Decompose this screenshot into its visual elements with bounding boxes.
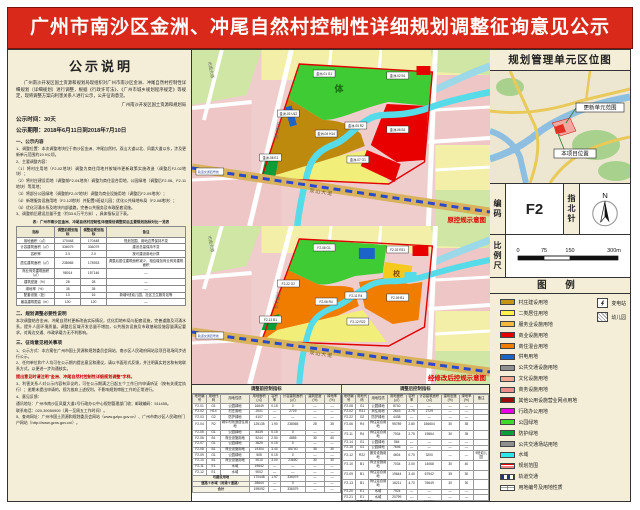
svg-text:150: 150: [565, 248, 574, 254]
parcel-label: 金洲-04 H14: [315, 130, 337, 137]
section4-items: 3、利害关系人对公示内容有异议的，可在公示期满之日起五个工作日内申请听证（按有关…: [16, 381, 186, 413]
legend-label: 防护绿地: [519, 430, 539, 437]
legend-item: 商业设施用地: [500, 330, 628, 341]
table-row: 商业商务建筑面积（㎡）98014157146—: [17, 268, 186, 279]
legend-item-kindergarten: 幼儿园: [597, 312, 626, 322]
before-table-caption: 调整前控制指标: [192, 385, 341, 394]
svg-text:本项目位置: 本项目位置: [561, 150, 589, 158]
svg-text:轨道交通四号线: 轨道交通四号线: [198, 169, 219, 174]
legend-item: 文化设施用地: [500, 373, 628, 384]
table-row: 用地面积（㎡）170448170448规划范围、用地边界保持不变: [17, 237, 186, 244]
table-row: 居住建筑面积（㎡）238065178933调整后居住建筑面积减少，相应增加商业商…: [17, 257, 186, 268]
legend-label: 商住混合用地: [519, 343, 548, 350]
notice-paragraph: 本次调整结合金洲、冲尾自然村更新改造实际情况，优化用地布局与配套设施，完善道路及…: [16, 318, 186, 335]
svg-text:金洲-05 R2: 金洲-05 R2: [348, 123, 364, 128]
svg-text:300m: 300m: [607, 248, 621, 254]
parcel-label: F2-08 G1: [313, 244, 335, 251]
legend-swatch: [500, 485, 515, 491]
svg-text:轨道交通四号线: 轨道交通四号线: [198, 333, 219, 338]
table-header-row: 指标调整前规划指标调整后规划指标备注: [17, 227, 186, 238]
mini-table-caption: 表：广州市南沙区金洲、冲尾自然村控制性详细规划调整前后主要规划指标对比一览表: [16, 220, 186, 225]
location-map-title: 规划管理单元区位图: [490, 50, 630, 71]
planning-notice-poster: 广州市南沙区金洲、冲尾自然村控制性详细规划调整征询意见公示 公示说明 广州南沙开…: [0, 0, 640, 510]
kindergarten-icon: [597, 312, 608, 322]
table-row: 容积率2.02.0按可建设用地计算: [17, 251, 186, 258]
legend-swatch: [500, 299, 515, 305]
legend-swatch: [500, 310, 515, 316]
notice-paragraph: 4、意见反馈：: [16, 394, 186, 400]
legend-item: 商务设施用地: [500, 384, 628, 395]
notice-paragraph: （3）将部分公园绿地（调整前F2-07地块）调整为商业设施用地（调整后F2-09…: [16, 191, 186, 197]
notice-paragraph: （1）将村庄用地（F2-02地块）调整为商住用地并按城市更新政策实施改造（调整后…: [16, 166, 186, 177]
parcel-label: 金洲-01 G1: [313, 70, 335, 77]
map-callout-site: 本项目位置: [554, 149, 596, 158]
legend-icons: 变电站 幼儿园: [597, 298, 626, 322]
notice-panel: 公示说明 广州南沙开发区国土资源和规划局现组织对广州市南沙区金洲、冲尾自然村控制…: [8, 50, 192, 501]
legend-label: 用地编号及用地性质: [519, 484, 563, 491]
table-row: F2-13B1商住混合用地162114.70766493030: [342, 480, 489, 490]
notice-paragraph: （4）新增服务设施用地（F2-12地块）并配置9班幼儿园；优化公共绿地布局（F2…: [16, 198, 186, 204]
table-row: F2-12R22服务设施用地46040.703200——9班幼儿园: [342, 451, 489, 461]
legend-label: 文化设施用地: [519, 375, 548, 382]
legend-swatch: [500, 387, 515, 393]
svg-text:F2-08 G1: F2-08 G1: [317, 246, 331, 250]
legend-swatch: [500, 332, 515, 338]
parcel-label: F2-06 R4: [315, 298, 337, 305]
before-indicator-table: 地块编号用地代码用地性质用地面积(㎡)容积率计容建筑面积(㎡)建筑密度(%)绿地…: [192, 394, 341, 493]
legend-item: 行政办公用地: [500, 406, 628, 417]
svg-text:金洲-06 B1: 金洲-06 B1: [390, 127, 406, 132]
notice-paragraph: 3、调整前后建设总量不变（约33.6万平方米），具体指标见下表。: [16, 211, 186, 217]
notice-paragraph: （2）将村庄建设用地（调整前F2-04地块）调整为商住混合用地、公园绿地（调整后…: [16, 178, 186, 189]
legend-item: 公共交通设施用地: [500, 362, 628, 373]
school-mark: 校: [393, 269, 400, 278]
legend-swatch: [500, 463, 515, 469]
legend-swatch: [500, 365, 515, 371]
north-compass: N: [580, 184, 630, 234]
svg-text:0: 0: [516, 248, 519, 254]
legend-label: 商业设施用地: [519, 332, 548, 339]
legend-item-substation: 变电站: [597, 298, 626, 308]
section2-items: 本次调整结合金洲、冲尾自然村更新改造实际情况，优化用地布局与配套设施，完善道路及…: [16, 318, 186, 335]
scale-bar: 0 75 150 300m: [506, 235, 630, 277]
legend-label: 其他公用设施营业网点用地: [519, 397, 578, 404]
notice-paragraph: （5）优化河涌水系及地块内部道路，完善公共服务及市政配套设施。: [16, 205, 186, 211]
svg-text:F2-11 R4: F2-11 R4: [349, 294, 362, 298]
legend-swatch: [500, 419, 515, 425]
map-corner-label: 原控规示意图: [447, 215, 486, 224]
notice-paragraph: 通讯地址：广州市南沙区凤凰大道1号行政办公中心规划管理部门收；邮政编码：5114…: [16, 401, 186, 407]
notice-time: 公示时间：30天: [16, 115, 186, 123]
parcel-label: 金洲-05 R2: [345, 122, 367, 129]
svg-text:更新单元范围: 更新单元范围: [583, 104, 617, 112]
table-row: F2-09B1商住混合用地196443.40679423530: [342, 470, 489, 480]
location-map: 更新单元范围 本项目位置: [490, 71, 630, 184]
code-compass-row: 编码 F2 指北针 N: [490, 184, 630, 235]
parcel-label: F2-22 G2: [277, 280, 299, 287]
notice-paragraph: 联系电话：020-39050909（周一至周五工作时间）。: [16, 408, 186, 414]
legend-label: 轨道交通: [519, 473, 539, 480]
parcel-label: F2-09 B1: [387, 294, 409, 301]
legend-label: 服务业设施用地: [519, 321, 553, 328]
legend-swatch: [500, 408, 515, 414]
after-table-caption: 调整后控制指标: [342, 385, 490, 394]
area-mark: 体: [335, 83, 345, 94]
parcel-label: F2-13 B1: [260, 316, 282, 323]
map-callout-unit: 更新单元范围: [576, 103, 624, 112]
notice-urls: 5、查询网址：广州市国土资源和规划委员会网站（www.gzlpc.gov.cn）…: [16, 414, 186, 425]
table-row: 最高建筑限高（m）100120—: [17, 299, 186, 306]
parcel-label: F2-11 R4: [345, 292, 367, 299]
parcel-label: 金洲-06 B1: [387, 126, 409, 133]
table-row: F2-11R4商住混合用地79342.75195643035: [342, 430, 489, 440]
section1-title: 一、公示内容: [16, 139, 186, 145]
legend-label: 公共交通设施用地: [519, 364, 558, 371]
parcel-label: 金洲-08 E1: [260, 154, 282, 161]
indicator-compare-table: 指标调整前规划指标调整后规划指标备注用地面积（㎡）170448170448规划范…: [16, 226, 186, 306]
section3-title: 三、征询意见相关事项: [16, 340, 186, 346]
content-frame: 公示说明 广州南沙开发区国土资源和规划局现组织对广州市南沙区金洲、冲尾自然村控制…: [7, 49, 631, 502]
svg-text:金洲-04 H14: 金洲-04 H14: [317, 131, 335, 136]
legend-item: 公共交通场站用地: [500, 439, 628, 450]
map-corner-label: 经修改后控规示意图: [428, 373, 487, 382]
parcel-label: F2-12 R22: [347, 318, 369, 325]
legend-item: 轨道交通: [500, 471, 628, 482]
scale-row: 比例尺 0 75 150 300m: [490, 235, 630, 278]
legend-label: 规划范围: [519, 462, 539, 469]
parcel-label: 金洲-02 B1: [387, 72, 409, 79]
section2-title: 二、规划调整必要性说明: [16, 311, 186, 317]
legend-item: 规划范围: [500, 460, 628, 471]
legend-item: 防护绿地: [500, 428, 628, 439]
notice-paragraph: 2、主要调整内容：: [16, 159, 186, 165]
unit-code: F2: [506, 184, 564, 234]
adjusted-plan-map: 校 F2-08 G1 F2-02 R31 F2-22 G2 F2-06 R4 F…: [192, 226, 489, 384]
table-row: F2-06R4商住混合用地957892.801566043035: [342, 421, 489, 431]
original-plan-map: 体 金洲-01 G1 金洲-02 B1 金洲-03 U12 金洲-04 H14 …: [192, 50, 489, 226]
substation-icon: [597, 298, 608, 308]
scale-label: 比例尺: [490, 235, 506, 277]
notice-paragraph: 3、利害关系人对公示内容有异议的，可在公示期满之日起五个工作日内申请听证（按有关…: [16, 381, 186, 392]
legend-item: 公园绿地: [500, 417, 628, 428]
svg-text:F2-06 R4: F2-06 R4: [320, 300, 333, 304]
legend-list-area: 村庄建设用地二类居住用地服务业设施用地商业设施用地商住混合用地供电用地公共交通设…: [490, 294, 630, 501]
notice-heading: 公示说明: [16, 56, 186, 75]
legend-title: 图 例: [490, 278, 630, 294]
svg-text:F2-22 G2: F2-22 G2: [282, 282, 296, 286]
table-row: F2-10B1商业设施用地70342.00140683040: [342, 461, 489, 471]
svg-text:F2-13 B1: F2-13 B1: [264, 318, 277, 322]
svg-text:F2-12 R22: F2-12 R22: [350, 320, 365, 324]
notice-issuer: 广州南沙开发区国土资源和规划局: [16, 102, 186, 108]
legend-label: 供电用地: [519, 353, 539, 360]
parcel-label: F2-02 R31: [387, 246, 409, 253]
notice-period: 公示期限：2018年6月11日到2018年7月10日: [16, 126, 186, 134]
table-row: 绿地率（%）3535—: [17, 285, 186, 292]
legend-swatch: [500, 430, 515, 436]
section3-items: 1、公示方式：本方案在广州市国土资源和规划委员会网站、南沙区人民政府网站及项目现…: [16, 348, 186, 372]
legend-swatch: [500, 376, 515, 382]
legend-label: 行政办公用地: [519, 408, 548, 415]
legend-label: 公共交通场站用地: [519, 441, 558, 448]
legend-swatch: [500, 354, 515, 360]
legend-swatch: [500, 441, 515, 447]
legend-swatch: [500, 452, 515, 458]
legend-item: 水域: [500, 449, 628, 460]
legend-item: 其他公用设施营业网点用地: [500, 395, 628, 406]
control-indicator-tables: 调整前控制指标 地块编号用地代码用地性质用地面积(㎡)容积率计容建筑面积(㎡)建…: [192, 384, 489, 501]
notice-red-note: 提出意见时请注明“金洲、冲尾自然村控制性详细规划调整”字样。: [16, 374, 186, 380]
after-table-panel: 调整后控制指标 地块编号用地代码用地性质用地面积(㎡)容积率计容建筑面积(㎡)建…: [341, 385, 490, 501]
page-title: 广州市南沙区金洲、冲尾自然村控制性详细规划调整征询意见公示: [7, 7, 633, 49]
notice-paragraph: 1、公示方式：本方案在广州市国土资源和规划委员会网站、南沙区人民政府网站及项目现…: [16, 348, 186, 359]
table-row: 配套设施（处）1316新增9班幼儿园、社区卫生服务站等: [17, 292, 186, 299]
rail-label: 轨道交通四号线: [196, 332, 224, 339]
legend-label: 水域: [519, 451, 529, 458]
after-indicator-table: 地块编号用地代码用地性质用地面积(㎡)容积率计容建筑面积(㎡)建筑密度(%)绿地…: [342, 394, 490, 501]
legend-item: 用地编号及用地性质: [500, 482, 628, 493]
before-table-panel: 调整前控制指标 地块编号用地代码用地性质用地面积(㎡)容积率计容建筑面积(㎡)建…: [192, 385, 341, 501]
rail-label: 轨道交通四号线: [196, 168, 224, 175]
legend-swatch: [500, 343, 515, 349]
svg-text:金洲-02 B1: 金洲-02 B1: [390, 73, 406, 78]
table-row: F2-04R2城中村改造居住用地1251351.902380652835: [193, 421, 341, 431]
legend-swatch: [500, 474, 515, 480]
notice-intro: 广州南沙开发区国土资源和规划局现组织对广州市南沙区金洲、冲尾自然村控制性详细规划…: [16, 80, 186, 100]
svg-text:金洲-03 U12: 金洲-03 U12: [280, 111, 298, 116]
svg-text:F2-02 R31: F2-02 R31: [390, 248, 405, 252]
table-header-row: 地块编号用地代码用地性质用地面积(㎡)容积率计容建筑面积(㎡)建筑密度(%)绿地…: [342, 394, 489, 404]
notice-paragraph: 2、任何单位和个人均可在公示期内提出意见和建议，请以书面形式反馈，并注明真实姓名…: [16, 360, 186, 371]
code-label: 编码: [490, 184, 506, 234]
legend-label: 变电站: [611, 300, 626, 307]
legend-item: 供电用地: [500, 351, 628, 362]
legend-panel: 规划管理单元区位图: [490, 50, 630, 501]
legend-label: 公园绿地: [519, 419, 539, 426]
svg-text:金洲-07 G1: 金洲-07 G1: [350, 157, 366, 162]
table-row: 计容建筑面积（㎡）336079336079建设总量保持不变: [17, 244, 186, 251]
notice-paragraph: 1、调整位置：本次调整地块位于南沙区金洲、冲尾自然村，双山大道以北、凤凰大道以东…: [16, 146, 186, 157]
parcel-label: 金洲-03 U12: [277, 110, 299, 117]
map-column: 体 金洲-01 G1 金洲-02 B1 金洲-03 U12 金洲-04 H14 …: [192, 50, 490, 501]
svg-text:F2-09 B1: F2-09 B1: [391, 296, 404, 300]
svg-text:75: 75: [541, 248, 547, 254]
svg-text:金洲-01 G1: 金洲-01 G1: [316, 71, 332, 76]
legend-label: 幼儿园: [611, 314, 626, 321]
compass-n: N: [602, 191, 608, 200]
parcel-label: 金洲-07 G1: [347, 156, 369, 163]
table-summary-row: 合计199092—336079——: [193, 487, 341, 493]
legend-swatch: [500, 397, 515, 403]
legend-item: 商住混合用地: [500, 341, 628, 352]
legend-label: 商务设施用地: [519, 386, 548, 393]
compass-label: 指北针: [564, 184, 580, 234]
legend-label: 村庄建设用地: [519, 299, 548, 306]
table-summary-row: 可建设用地1672072.04340756——: [342, 500, 489, 501]
table-header-row: 地块编号用地代码用地性质用地面积(㎡)容积率计容建筑面积(㎡)建筑密度(%)绿地…: [193, 394, 341, 404]
table-row: 建筑密度（%）2828—: [17, 279, 186, 286]
svg-text:金洲-08 E1: 金洲-08 E1: [263, 155, 279, 160]
legend-label: 二类居住用地: [519, 310, 548, 317]
legend-swatch: [500, 321, 515, 327]
section1-items: 1、调整位置：本次调整地块位于南沙区金洲、冲尾自然村，双山大道以北、凤凰大道以东…: [16, 146, 186, 217]
